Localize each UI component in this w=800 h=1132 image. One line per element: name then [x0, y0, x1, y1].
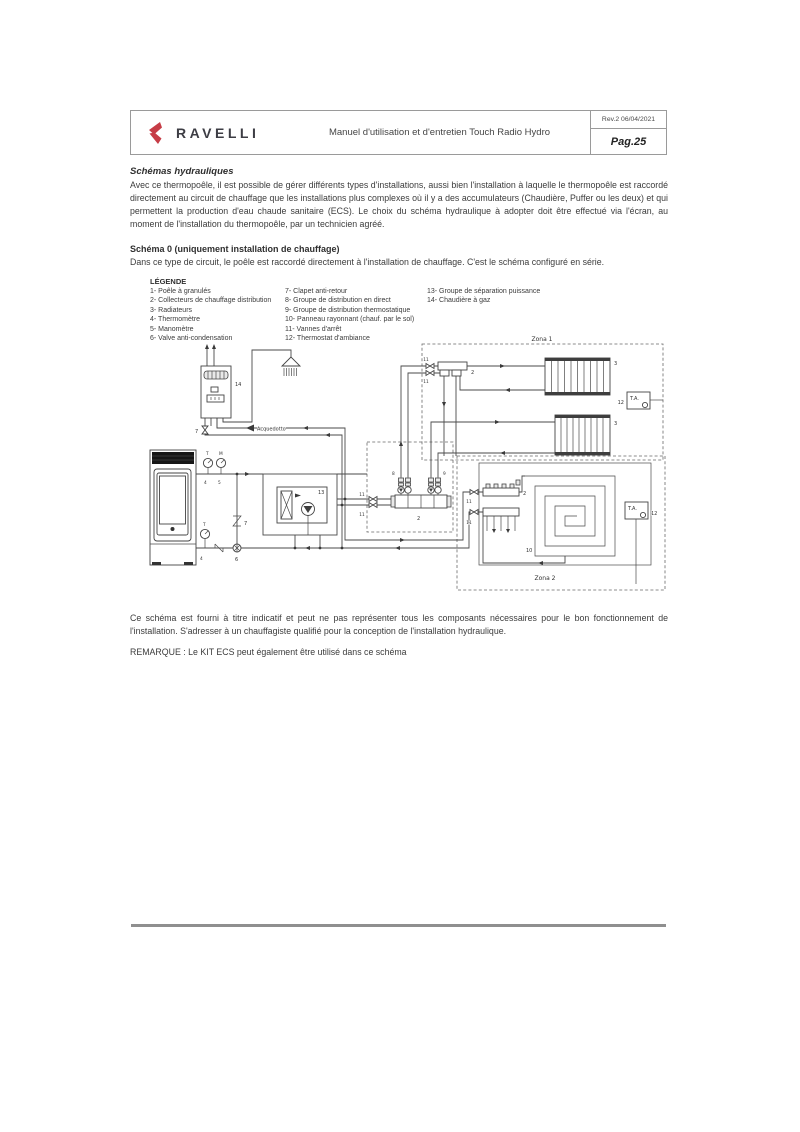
floor-manifold: 2 [483, 480, 526, 533]
pipe-dhw [223, 350, 291, 422]
legend-item: 9- Groupe de distribution thermostatique [285, 306, 414, 315]
shower-icon [282, 357, 300, 376]
footer-rule [131, 924, 666, 927]
zone2-label: Zona 2 [535, 575, 556, 582]
legend-item: 10- Panneau rayonnant (chauf. par le sol… [285, 315, 414, 324]
manometer-gauge: M 5 [216, 451, 225, 486]
svg-text:11: 11 [423, 379, 429, 385]
flow-arrow [442, 402, 446, 407]
brand-logo: RAVELLI [131, 111, 289, 154]
section-title: Schémas hydrauliques [130, 166, 233, 177]
room-thermostat: T.A. 12 [618, 392, 663, 409]
flow-arrow [538, 561, 543, 565]
legend-item: 7- Clapet anti-retour [285, 287, 414, 296]
page-header: RAVELLI Manuel d'utilisation et d'entret… [130, 110, 667, 155]
check-valve-boiler: 7 [195, 426, 208, 435]
chimney-pipes [207, 348, 214, 366]
svg-text:11: 11 [466, 520, 472, 526]
acquedotto-marker: Acquedotto [246, 425, 286, 433]
room-thermostat: T.A. 12 [625, 502, 657, 584]
pipe-supply-run [217, 418, 483, 540]
svg-text:T.A.: T.A. [627, 506, 637, 512]
pipe-collector-down [444, 376, 456, 456]
flow-arrow [495, 420, 500, 424]
svg-text:10: 10 [526, 548, 532, 554]
flow-arrow [500, 364, 505, 368]
legend-item: 13- Groupe de séparation puissance [427, 287, 540, 296]
pipe-rad2-out [438, 453, 555, 477]
flow-arrow [245, 472, 250, 476]
thermometer-gauge: T 4 [203, 451, 212, 486]
shutoff-valve: 11 [423, 357, 434, 369]
svg-text:11: 11 [359, 492, 365, 498]
svg-text:M: M [219, 451, 223, 457]
svg-text:3: 3 [614, 421, 617, 427]
zone1-label: Zona 1 [532, 336, 553, 343]
flame-logo-icon [145, 121, 167, 145]
svg-text:9: 9 [443, 471, 446, 477]
manual-page: RAVELLI Manuel d'utilisation et d'entret… [0, 0, 800, 1132]
svg-text:T: T [202, 522, 206, 528]
legend-item: 3- Radiateurs [150, 306, 271, 315]
legend-item: 4- Thermomètre [150, 315, 271, 324]
flow-arrow [303, 426, 308, 430]
legend-item: 1- Poêle à granulés [150, 287, 271, 296]
svg-text:4: 4 [204, 480, 207, 486]
radiator-symbol: 3 [555, 415, 617, 455]
svg-text:2: 2 [471, 370, 474, 376]
pipe-riser-z1-supply [401, 366, 438, 477]
thermometer-gauge-return: T 4 [200, 522, 210, 562]
remark-note: REMARQUE : Le KIT ECS peut également êtr… [130, 647, 668, 657]
svg-text:12: 12 [618, 400, 624, 406]
svg-text:4: 4 [200, 556, 203, 562]
shutoff-valve: 11 [466, 510, 478, 527]
flue-arrow [212, 344, 216, 349]
flow-arrow [325, 433, 330, 437]
svg-text:3: 3 [614, 361, 617, 367]
svg-text:5: 5 [218, 480, 221, 486]
zone1-collector: 2 [438, 362, 474, 376]
pipe-rad1-out [460, 376, 545, 390]
flow-arrow [505, 388, 510, 392]
pipe-separator-stubs [295, 535, 320, 548]
svg-text:11: 11 [423, 357, 429, 363]
section-body: Avec ce thermopoêle, il est possible de … [130, 179, 668, 231]
check-valve-bypass: 7 [233, 516, 247, 527]
svg-text:13: 13 [318, 490, 324, 496]
schema0-title: Schéma 0 (uniquement installation de cha… [130, 244, 340, 254]
flow-arrow [395, 546, 400, 550]
brand-text: RAVELLI [176, 125, 259, 141]
svg-text:T.A.: T.A. [629, 396, 639, 402]
acquedotto-label: Acquedotto [257, 427, 286, 433]
svg-text:12: 12 [651, 511, 657, 517]
document-title: Manuel d'utilisation et d'entretien Touc… [289, 111, 590, 154]
pipe-rad2-in [431, 422, 555, 477]
legend-title: LÉGENDE [150, 277, 186, 286]
revision-label: Rev.2 06/04/2021 [591, 111, 666, 129]
hydraulic-schematic: Zona 1 Zona 2 [145, 332, 685, 607]
pipe-riser-z1-return [408, 373, 440, 477]
radiator-symbol: 3 [545, 358, 617, 395]
shutoff-valve: 11 [359, 492, 377, 502]
flow-arrow [305, 546, 310, 550]
legend-item: 14- Chaudière à gaz [427, 296, 540, 305]
legend-item: 8- Groupe de distribution en direct [285, 296, 414, 305]
legend-item: 2- Collecteurs de chauffage distribution [150, 296, 271, 305]
gas-boiler-symbol: 14 [201, 366, 241, 418]
distribution-collector: 2 [391, 495, 451, 522]
flue-arrow [205, 344, 209, 349]
svg-text:11: 11 [359, 512, 365, 518]
flow-arrow [400, 538, 405, 542]
floor-heating-coil: 10 [525, 476, 615, 556]
footer-note: Ce schéma est fourni à titre indicatif e… [130, 612, 668, 638]
boiler-number: 14 [235, 382, 241, 388]
flow-arrow [500, 451, 505, 455]
svg-text:8: 8 [392, 471, 395, 477]
legend-column-3: 13- Groupe de séparation puissance 14- C… [427, 287, 540, 306]
separation-group: 13 [277, 487, 327, 535]
svg-text:7: 7 [244, 521, 247, 527]
svg-text:11: 11 [466, 499, 472, 505]
svg-text:6: 6 [235, 557, 238, 563]
header-meta: Rev.2 06/04/2021 Pag.25 [590, 111, 666, 154]
distribution-group-thermostatic: 9 [428, 471, 446, 495]
svg-text:2: 2 [417, 516, 420, 522]
schema0-body: Dans ce type de circuit, le poêle est ra… [130, 257, 668, 267]
pellet-stove-symbol [150, 450, 196, 565]
svg-text:2: 2 [523, 491, 526, 497]
anticondensation-valve: 6 [233, 544, 241, 563]
pipe-return-run [196, 512, 483, 548]
page-number-label: Pag.25 [591, 129, 666, 154]
svg-text:T: T [205, 451, 209, 457]
svg-text:7: 7 [195, 429, 198, 435]
